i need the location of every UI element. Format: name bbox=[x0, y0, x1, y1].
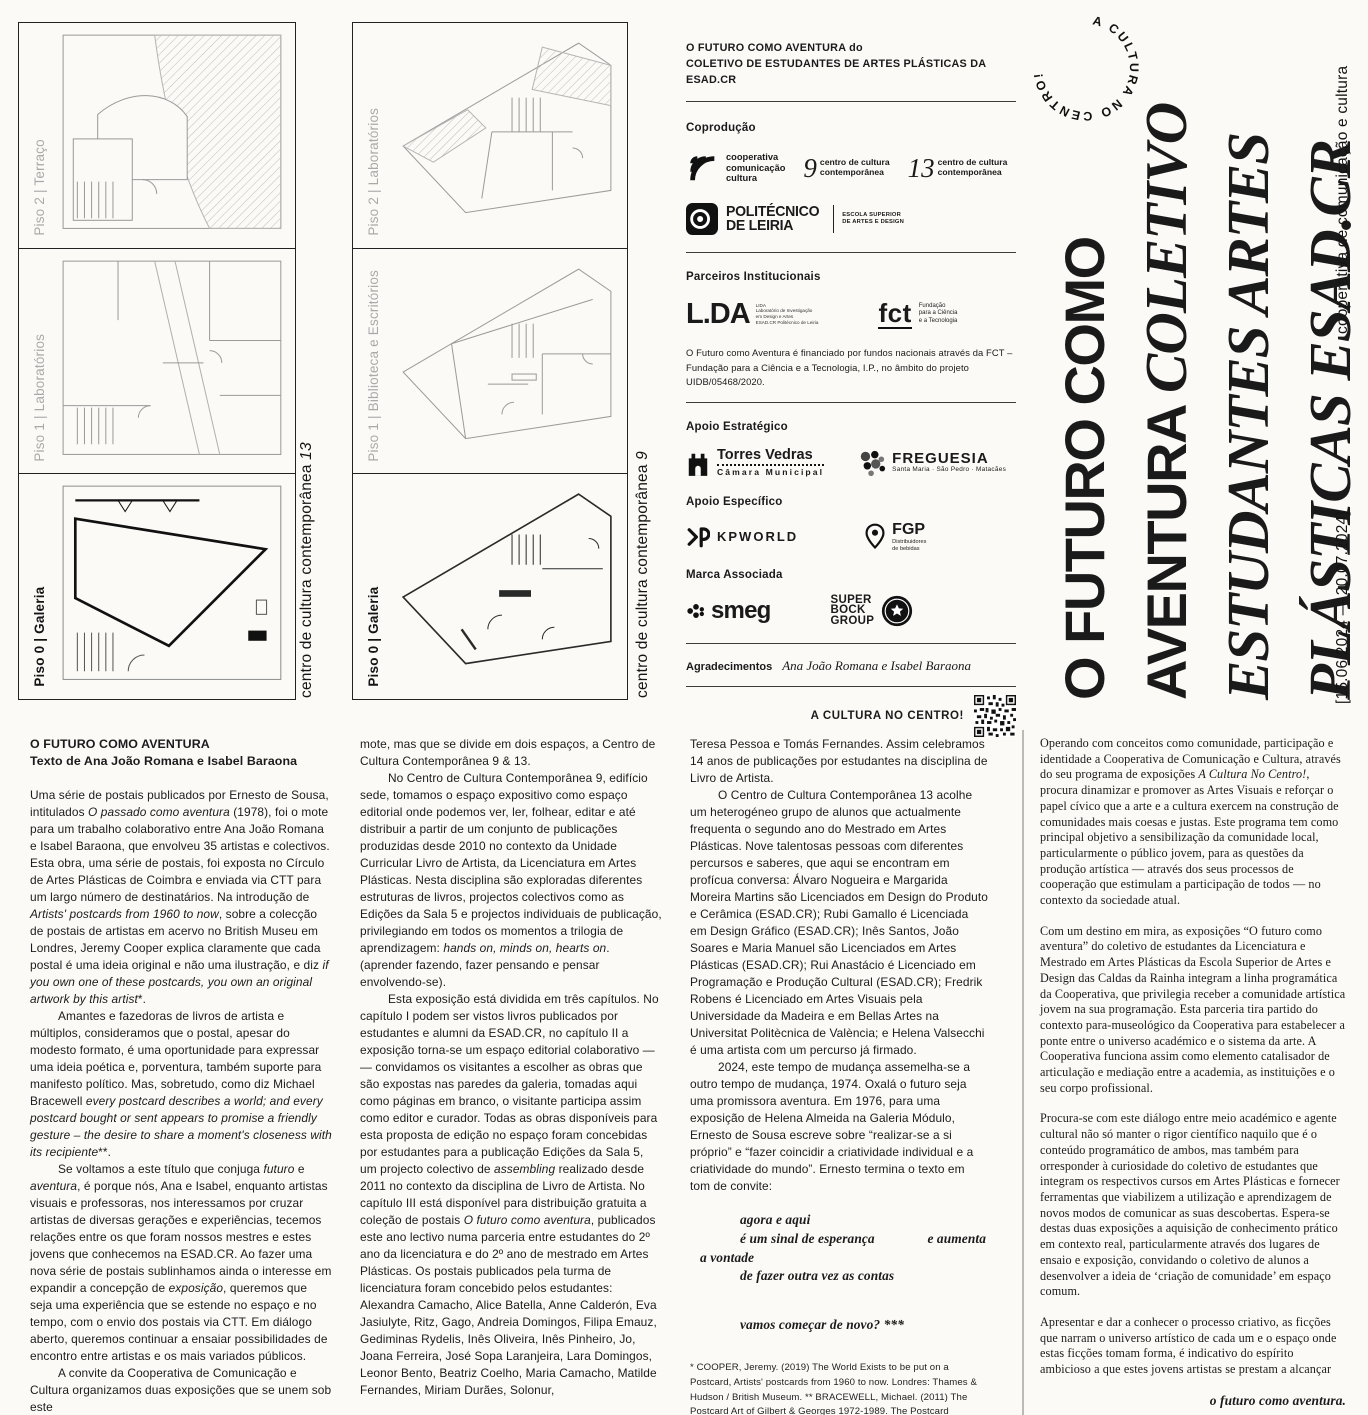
superbock-seal-icon bbox=[880, 594, 914, 628]
footnotes: * COOPER, Jeremy. (2019) The World Exist… bbox=[690, 1361, 988, 1415]
poem-line: é um sinal de esperançae aumenta bbox=[690, 1230, 988, 1249]
smeg-wordmark: smeg bbox=[711, 597, 771, 625]
esad-line: ESCOLA SUPERIOR bbox=[842, 212, 904, 219]
paragraph: O Centro de Cultura Contemporânea 13 aco… bbox=[690, 787, 988, 1059]
torres-vedras-sub: Câmara Municipal bbox=[717, 466, 824, 478]
paragraph: No Centro de Cultura Contemporânea 9, ed… bbox=[360, 770, 662, 991]
floor-cell: Piso 2 | Terraço bbox=[19, 23, 295, 248]
logo-kpworld: KPWORLD bbox=[686, 525, 798, 549]
article-column-1: O FUTURO COMO AVENTURA Texto de Ana João… bbox=[30, 736, 332, 1415]
article-column-4: Operando com conceitos como comunidade, … bbox=[1040, 736, 1346, 1415]
ccc9-numeral: 9 bbox=[803, 155, 817, 181]
poem-line: vamos começar de novo? *** bbox=[690, 1316, 988, 1335]
divider bbox=[686, 101, 1016, 102]
tagline: o futuro como aventura. bbox=[1040, 1393, 1346, 1409]
coproducao-logos: cooperativa comunicação cultura 9 centro… bbox=[686, 146, 1016, 190]
poem-line: a vontade bbox=[690, 1249, 988, 1268]
paragraph: A convite da Cooperativa de Comunicação … bbox=[30, 1365, 332, 1415]
qr-code bbox=[974, 695, 1016, 737]
paragraph: Amantes e fazedoras de livros de artista… bbox=[30, 1008, 332, 1161]
apoio-estrategico-logos: Torres Vedras Câmara Municipal FREGUESIA… bbox=[686, 445, 1016, 481]
freguesia-sub: Santa Maria · São Pedro · Matacães bbox=[892, 466, 1006, 474]
parceiros-label: Parceiros Institucionais bbox=[686, 271, 1016, 283]
torres-vedras-name: Torres Vedras bbox=[717, 448, 824, 466]
article-column-2: mote, mas que se divide em dois espaços,… bbox=[360, 736, 662, 1399]
castle-icon bbox=[686, 449, 710, 477]
politecnico-line: DE LEIRIA bbox=[726, 219, 819, 233]
column-1-body: Uma série de postais publicados por Erne… bbox=[30, 787, 332, 1415]
superbock-line: GROUP bbox=[831, 616, 875, 627]
title-line4: PLÁSTICAS ESAD.CR bbox=[1297, 140, 1363, 700]
kpworld-wordmark: KPWORLD bbox=[717, 529, 798, 544]
cultura-centro-wordmark: A CULTURA NO CENTRO! bbox=[811, 710, 964, 722]
marca-associada-label: Marca Associada bbox=[686, 569, 1016, 581]
credits-header-line1: O FUTURO COMO AVENTURA do bbox=[686, 40, 1016, 56]
floor-label: Piso 1 | Biblioteca e Escritórios bbox=[366, 261, 381, 462]
floor-label: Piso 2 | Terraço bbox=[32, 35, 47, 236]
panel-caption-ccc13: centro de cultura contemporânea 13 bbox=[298, 22, 316, 698]
floor-cell: Piso 1 | Biblioteca e Escritórios bbox=[353, 248, 627, 474]
coop-line: cooperativa bbox=[726, 152, 785, 163]
floor-plan-drawing bbox=[391, 27, 623, 237]
divider bbox=[686, 643, 1016, 644]
paragraph: 2024, este tempo de mudança assemelha-se… bbox=[690, 1059, 988, 1195]
floor-cell: Piso 2 | Laboratórios bbox=[353, 23, 627, 248]
cover-title: O FUTURO COMO AVENTURA COLETIVO ESTUDANT… bbox=[1052, 112, 1320, 700]
lida-wordmark: L.DA bbox=[686, 299, 750, 329]
credits-header: O FUTURO COMO AVENTURA do COLETIVO DE ES… bbox=[686, 40, 1016, 88]
cultura-centro-row: A CULTURA NO CENTRO! bbox=[686, 695, 1016, 737]
credits-panel: O FUTURO COMO AVENTURA do COLETIVO DE ES… bbox=[686, 40, 1016, 737]
kpworld-icon bbox=[686, 525, 710, 549]
ccc13-numeral: 13 bbox=[908, 155, 935, 181]
floorplan-panel-ccc13: Piso 2 | Terraço Piso 1 | Laboratórios P… bbox=[18, 22, 296, 700]
logo-torres-vedras: Torres Vedras Câmara Municipal bbox=[686, 448, 824, 478]
logo-fct: fct Fundação para a Ciência e a Tecnolog… bbox=[878, 300, 957, 329]
paragraph: Procura-se com este diálogo entre meio a… bbox=[1040, 1111, 1346, 1299]
floor-label: Piso 0 | Galeria bbox=[32, 486, 47, 687]
parceiros-logos: L.DA LIDA Laboratório de Investigação em… bbox=[686, 295, 1016, 333]
paragraph: Uma série de postais publicados por Erne… bbox=[30, 787, 332, 1008]
floor-plan-drawing bbox=[391, 478, 623, 688]
fct-wordmark: fct bbox=[878, 300, 911, 329]
esad-line: DE ARTES E DESIGN bbox=[842, 219, 904, 226]
paragraph: mote, mas que se divide em dois espaços,… bbox=[360, 736, 662, 770]
logo-super-bock-group: SUPER BOCK GROUP bbox=[831, 594, 915, 628]
article-byline: Texto de Ana João Romana e Isabel Baraon… bbox=[30, 753, 332, 770]
floor-plan-drawing bbox=[57, 27, 291, 239]
fgp-line: Distribuidores bbox=[892, 539, 926, 546]
marca-associada-logos: smeg SUPER BOCK GROUP bbox=[686, 591, 1016, 631]
paragraph: Operando com conceitos como comunidade, … bbox=[1040, 736, 1346, 909]
fgp-wordmark: FGP bbox=[892, 521, 925, 538]
svg-text:A CULTURA NO CENTRO!: A CULTURA NO CENTRO! bbox=[1031, 13, 1141, 123]
title-line2-serif: COLETIVO bbox=[1133, 103, 1199, 393]
floor-plan-drawing bbox=[391, 253, 623, 463]
logo-ccc9: 9 centro de cultura contemporânea bbox=[803, 155, 889, 181]
circle-text: A CULTURA NO CENTRO! bbox=[1031, 13, 1141, 123]
coop-line: comunicação bbox=[726, 163, 785, 174]
paragraph: Esta exposição está dividida em três cap… bbox=[360, 991, 662, 1399]
article-title: O FUTURO COMO AVENTURA bbox=[30, 736, 332, 753]
column-3-body: Teresa Pessoa e Tomás Fernandes. Assim c… bbox=[690, 736, 988, 1195]
logo-freguesia: FREGUESIA Santa Maria · São Pedro · Mata… bbox=[858, 449, 1006, 477]
apoio-especifico-label: Apoio Específico bbox=[686, 496, 1016, 508]
fct-line: e a Tecnologia bbox=[919, 318, 958, 325]
article-column-3: Teresa Pessoa e Tomás Fernandes. Assim c… bbox=[690, 736, 988, 1415]
title-line3: ESTUDANTES ARTES bbox=[1215, 133, 1281, 700]
lida-line: ESAD.CR Politécnico de Leiria bbox=[756, 320, 819, 326]
fct-line: Fundação bbox=[919, 303, 958, 310]
column-2-body: mote, mas que se divide em dois espaços,… bbox=[360, 736, 662, 1399]
fct-line: para a Ciência bbox=[919, 310, 958, 317]
title-line1: O FUTURO COMO bbox=[1053, 237, 1116, 700]
logo-ccc13: 13 centro de cultura contemporânea bbox=[908, 155, 1008, 181]
logo-lida: L.DA LIDA Laboratório de Investigação em… bbox=[686, 299, 818, 329]
panel-caption-ccc9: centro de cultura contemporânea 9 bbox=[634, 22, 652, 698]
ccc-line: contemporânea bbox=[938, 168, 1008, 178]
logo-smeg: smeg bbox=[686, 597, 771, 625]
poem-line: agora e aqui bbox=[690, 1211, 988, 1230]
floorplan-panel-ccc9: Piso 2 | Laboratórios Piso 1 | Bibliotec… bbox=[352, 22, 628, 700]
coproducao-label: Coprodução bbox=[686, 122, 1016, 134]
freguesia-name: FREGUESIA bbox=[892, 451, 1006, 466]
divider bbox=[686, 686, 1016, 687]
floor-cell: Piso 0 | Galeria bbox=[19, 473, 295, 699]
fgp-line: de bebidas bbox=[892, 546, 926, 553]
agradecimentos-label: Agradecimentos bbox=[686, 661, 772, 673]
paragraph: Se voltamos a este título que conjuga fu… bbox=[30, 1161, 332, 1365]
paragraph: Teresa Pessoa e Tomás Fernandes. Assim c… bbox=[690, 736, 988, 787]
title-line2-sans: AVENTURA bbox=[1135, 393, 1198, 700]
cooperativa-arcs-icon bbox=[686, 151, 720, 185]
politecnico-eye-icon bbox=[686, 203, 718, 235]
cover-side-caption: cooperativa de comunicação e cultura bbox=[1334, 24, 1352, 334]
credits-header-line2: COLETIVO DE ESTUDANTES DE ARTES PLÁSTICA… bbox=[686, 56, 1016, 88]
logo-cooperativa: cooperativa comunicação cultura bbox=[686, 151, 785, 185]
poem-line: de fazer outra vez as contas bbox=[690, 1267, 988, 1286]
paragraph: Com um destino em mira, as exposições “O… bbox=[1040, 924, 1346, 1097]
floor-label: Piso 0 | Galeria bbox=[366, 486, 381, 687]
logo-fgp: FGP Distribuidores de bebidas bbox=[864, 521, 926, 552]
funding-note: O Futuro como Aventura é financiado por … bbox=[686, 346, 1016, 390]
agradecimentos-names: Ana João Romana e Isabel Baraona bbox=[782, 658, 971, 674]
ccc-line: contemporânea bbox=[820, 168, 890, 178]
apoio-especifico-logos: KPWORLD FGP Distribuidores de bebidas bbox=[686, 520, 1016, 554]
freguesia-cluster-icon bbox=[858, 449, 886, 477]
exhibition-dates: [15.06.2024 — 20.07.2024] bbox=[1334, 468, 1352, 704]
floor-label: Piso 2 | Laboratórios bbox=[366, 35, 381, 236]
cultura-centro-circle-logo: A CULTURA NO CENTRO! bbox=[1030, 12, 1142, 124]
poem-quote: agora e aquié um sinal de esperançae aum… bbox=[690, 1211, 988, 1335]
floor-plan-drawing bbox=[57, 253, 291, 465]
apoio-estrategico-label: Apoio Estratégico bbox=[686, 421, 1016, 433]
divider bbox=[686, 402, 1016, 403]
column-4-body: Operando com conceitos como comunidade, … bbox=[1040, 736, 1346, 1378]
floor-cell: Piso 1 | Laboratórios bbox=[19, 248, 295, 474]
brochure-sheet: Piso 2 | Terraço Piso 1 | Laboratórios P… bbox=[0, 0, 1368, 1415]
floor-plan-drawing bbox=[57, 478, 291, 690]
floor-label: Piso 1 | Laboratórios bbox=[32, 261, 47, 462]
divider bbox=[686, 252, 1016, 253]
paragraph: Apresentar e dar a conhecer o processo c… bbox=[1040, 1315, 1346, 1378]
logo-politecnico-leiria: POLITÉCNICO DE LEIRIA ESCOLA SUPERIOR DE… bbox=[686, 202, 1016, 236]
floor-cell: Piso 0 | Galeria bbox=[353, 473, 627, 699]
agradecimentos-row: Agradecimentos Ana João Romana e Isabel … bbox=[686, 658, 1016, 674]
smeg-dots-icon bbox=[686, 601, 706, 621]
fold-crease bbox=[1022, 730, 1024, 1415]
coop-line: cultura bbox=[726, 173, 785, 184]
pin-icon bbox=[864, 523, 886, 550]
poem-line bbox=[690, 1286, 988, 1316]
divider bbox=[833, 205, 834, 233]
